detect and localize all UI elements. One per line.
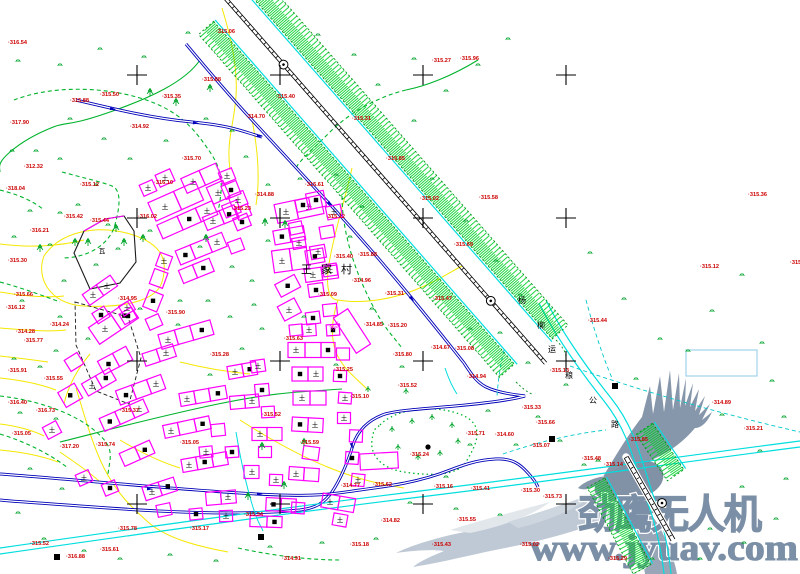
svg-text:·315.31: ·315.31 <box>385 291 404 297</box>
svg-text:土: 土 <box>223 511 230 520</box>
svg-text:土: 土 <box>315 247 322 256</box>
svg-text:·315.34: ·315.34 <box>244 512 264 518</box>
svg-text:·315.44: ·315.44 <box>588 318 608 324</box>
svg-text:土: 土 <box>162 202 169 211</box>
svg-text:土: 土 <box>124 303 131 312</box>
svg-text:土: 土 <box>232 367 239 376</box>
svg-text:·315.88: ·315.88 <box>202 77 221 83</box>
svg-text:土: 土 <box>235 195 242 204</box>
svg-text:瓦: 瓦 <box>99 247 106 255</box>
svg-text:土: 土 <box>153 379 160 388</box>
svg-text:·315.62: ·315.62 <box>373 482 392 488</box>
svg-text:·314.95: ·314.95 <box>118 296 137 302</box>
svg-text:·316.21: ·316.21 <box>30 228 49 234</box>
svg-text:·315.66: ·315.66 <box>14 292 33 298</box>
svg-text:·315.55: ·315.55 <box>44 376 63 382</box>
svg-text:·314.89: ·314.89 <box>712 400 731 406</box>
svg-text:土: 土 <box>149 487 156 496</box>
svg-text:·314.70: ·314.70 <box>246 114 265 120</box>
svg-text:·315.61: ·315.61 <box>100 547 119 553</box>
svg-text:·315.30: ·315.30 <box>521 488 540 494</box>
svg-text:·315.41: ·315.41 <box>471 486 490 492</box>
svg-text:土: 土 <box>49 425 56 434</box>
svg-text:土: 土 <box>90 290 97 299</box>
svg-text:·315.35: ·315.35 <box>162 94 181 100</box>
svg-text:公: 公 <box>589 396 597 405</box>
svg-text:土: 土 <box>224 171 231 180</box>
svg-text:·315.42: ·315.42 <box>64 214 83 220</box>
svg-text:杨: 杨 <box>518 295 526 305</box>
svg-text:·315.91: ·315.91 <box>8 368 27 374</box>
svg-text:土: 土 <box>286 305 293 314</box>
svg-text:·315.88: ·315.88 <box>70 98 89 104</box>
svg-text:·315.23: ·315.23 <box>232 206 251 212</box>
svg-text:·315.44: ·315.44 <box>90 218 110 224</box>
svg-text:·315.69: ·315.69 <box>454 242 473 248</box>
svg-text:·314.28: ·314.28 <box>16 329 35 335</box>
svg-text:·316.54: ·316.54 <box>8 40 28 46</box>
svg-text:土: 土 <box>190 177 197 186</box>
svg-text:·316.73: ·316.73 <box>36 408 55 414</box>
svg-text:·315.96: ·315.96 <box>460 56 479 62</box>
svg-text:·314.67: ·314.67 <box>431 345 450 351</box>
svg-text:·314.85: ·314.85 <box>364 322 383 328</box>
svg-text:·316.10: ·316.10 <box>154 180 173 186</box>
svg-text:·315.30: ·315.30 <box>8 258 27 264</box>
svg-text:·315.31: ·315.31 <box>352 116 371 122</box>
svg-text:土: 土 <box>145 183 152 192</box>
svg-text:·315.52: ·315.52 <box>398 383 417 389</box>
svg-text:·315.55: ·315.55 <box>457 517 476 523</box>
svg-text:·315.12: ·315.12 <box>326 214 345 220</box>
svg-text:·315.12: ·315.12 <box>700 264 719 270</box>
svg-text:·315.52: ·315.52 <box>262 412 281 418</box>
svg-text:·315.88: ·315.88 <box>358 252 377 258</box>
svg-text:·315.90: ·315.90 <box>166 310 185 316</box>
svg-text:·314.88: ·314.88 <box>255 192 274 198</box>
svg-text:土: 土 <box>203 447 210 456</box>
svg-text:土: 土 <box>81 473 88 482</box>
svg-text:·315.80: ·315.80 <box>393 352 412 358</box>
svg-text:·312.32: ·312.32 <box>24 164 43 170</box>
svg-text:土: 土 <box>161 256 168 265</box>
svg-text:土: 土 <box>184 394 191 403</box>
svg-text:·315.09: ·315.09 <box>318 292 337 298</box>
svg-text:·315.27: ·315.27 <box>432 58 451 64</box>
svg-text:·314.24: ·314.24 <box>50 322 70 328</box>
svg-text:土: 土 <box>89 381 96 390</box>
svg-text:·315.10: ·315.10 <box>350 394 369 400</box>
svg-text:·315.18: ·315.18 <box>350 542 369 548</box>
svg-text:土: 土 <box>337 515 344 524</box>
svg-text:·315.37: ·315.37 <box>120 408 139 414</box>
svg-text:土: 土 <box>225 492 232 501</box>
svg-text:·315.20: ·315.20 <box>388 323 407 329</box>
svg-text:·314.96: ·314.96 <box>352 278 371 284</box>
svg-text:·315.85: ·315.85 <box>386 156 405 162</box>
svg-text:土: 土 <box>283 207 290 216</box>
svg-text:·315.47: ·315.47 <box>433 296 452 302</box>
svg-text:·315.28: ·315.28 <box>210 352 229 358</box>
svg-text:·314.94: ·314.94 <box>467 374 487 380</box>
svg-text:土: 土 <box>249 396 256 405</box>
svg-text:·314.92: ·314.92 <box>130 124 149 130</box>
svg-text:土: 土 <box>257 429 264 438</box>
svg-text:·315.73: ·315.73 <box>543 494 562 500</box>
svg-text:土: 土 <box>273 475 280 484</box>
svg-text:土: 土 <box>279 256 286 265</box>
svg-text:土: 土 <box>341 413 348 422</box>
svg-text:土: 土 <box>214 237 221 246</box>
svg-text:·315.40: ·315.40 <box>334 254 353 260</box>
svg-text:土: 土 <box>204 206 211 215</box>
svg-text:土: 土 <box>296 238 303 247</box>
svg-text:·315.77: ·315.77 <box>24 338 43 344</box>
svg-text:粮: 粮 <box>565 370 573 380</box>
svg-text:·314.77: ·314.77 <box>341 483 360 489</box>
svg-text:柳: 柳 <box>537 320 545 330</box>
svg-text:·315.50: ·315.50 <box>100 92 119 98</box>
svg-text:·315.48: ·315.48 <box>582 456 601 462</box>
svg-text:·315.52: ·315.52 <box>30 541 49 547</box>
svg-text:土: 土 <box>215 188 222 197</box>
svg-text:·315.33: ·315.33 <box>522 405 541 411</box>
svg-text:·315.58: ·315.58 <box>479 195 498 201</box>
svg-text:·315.08: ·315.08 <box>455 346 474 352</box>
svg-text:·314.60: ·314.60 <box>495 432 514 438</box>
svg-text:·315.43: ·315.43 <box>432 542 451 548</box>
svg-text:·316.02: ·316.02 <box>138 214 157 220</box>
svg-text:土: 土 <box>327 497 334 506</box>
svg-text:·315.12: ·315.12 <box>80 182 99 188</box>
svg-text:·315.78: ·315.78 <box>118 526 137 532</box>
svg-text:土: 土 <box>312 420 319 429</box>
svg-text:·315.06: ·315.06 <box>216 29 235 35</box>
svg-text:·315.02: ·315.02 <box>420 196 439 202</box>
svg-text:·318.04: ·318.04 <box>6 186 26 192</box>
svg-text:·315.40: ·315.40 <box>276 94 295 100</box>
svg-text:·317.90: ·317.90 <box>10 120 29 126</box>
svg-text:运: 运 <box>548 345 556 354</box>
svg-text:·315.85: ·315.85 <box>629 437 648 443</box>
svg-text:土: 土 <box>306 325 313 334</box>
svg-text:·315.16: ·315.16 <box>434 484 453 490</box>
svg-text:·315.70: ·315.70 <box>182 156 201 162</box>
svg-text:·315.66: ·315.66 <box>536 420 555 426</box>
svg-text:·315.61: ·315.61 <box>305 182 324 188</box>
svg-text:土: 土 <box>168 426 175 435</box>
svg-text:·315.25: ·315.25 <box>334 367 353 373</box>
svg-text:·315.14: ·315.14 <box>604 462 624 468</box>
svg-text:土: 土 <box>342 393 349 402</box>
svg-text:路: 路 <box>611 419 619 429</box>
svg-text:土: 土 <box>299 393 306 402</box>
svg-text:土: 土 <box>104 281 111 290</box>
svg-text:·315.07: ·315.07 <box>531 443 550 449</box>
svg-text:·317.20: ·317.20 <box>60 444 79 450</box>
svg-text:·315.24: ·315.24 <box>410 452 430 458</box>
svg-text:土: 土 <box>249 467 256 476</box>
svg-text:·314.91: ·314.91 <box>282 556 301 562</box>
svg-text:·315.21: ·315.21 <box>744 426 763 432</box>
svg-text:·315.05: ·315.05 <box>12 431 31 437</box>
svg-text:土: 土 <box>293 469 300 478</box>
svg-text:·315.74: ·315.74 <box>96 442 116 448</box>
svg-text:·315.71: ·315.71 <box>466 431 485 437</box>
svg-text:·315.59: ·315.59 <box>300 440 319 446</box>
svg-text:土: 土 <box>255 361 262 370</box>
svg-text:·316.40: ·316.40 <box>8 400 27 406</box>
svg-text:·316.88: ·316.88 <box>66 554 85 560</box>
svg-text:·316.12: ·316.12 <box>6 305 25 311</box>
svg-text:土: 土 <box>165 335 172 344</box>
svg-text:·315.17: ·315.17 <box>190 526 209 532</box>
svg-text:土: 土 <box>293 345 300 354</box>
svg-text:·315.29: ·315.29 <box>608 556 627 562</box>
svg-text:·315.36: ·315.36 <box>748 192 767 198</box>
svg-text:·315.02: ·315.02 <box>520 542 539 548</box>
svg-text:土: 土 <box>186 460 193 469</box>
svg-text:土: 土 <box>313 369 320 378</box>
svg-text:土: 土 <box>210 216 217 225</box>
svg-text:·315.05: ·315.05 <box>180 440 199 446</box>
svg-text:·314.82: ·314.82 <box>381 518 400 524</box>
svg-text:土: 土 <box>163 348 170 357</box>
svg-text:·315.64: ·315.64 <box>790 260 800 266</box>
svg-text:土: 土 <box>102 324 109 333</box>
svg-text:·315.63: ·315.63 <box>284 336 303 342</box>
svg-text:王家村: 王家村 <box>301 262 361 276</box>
